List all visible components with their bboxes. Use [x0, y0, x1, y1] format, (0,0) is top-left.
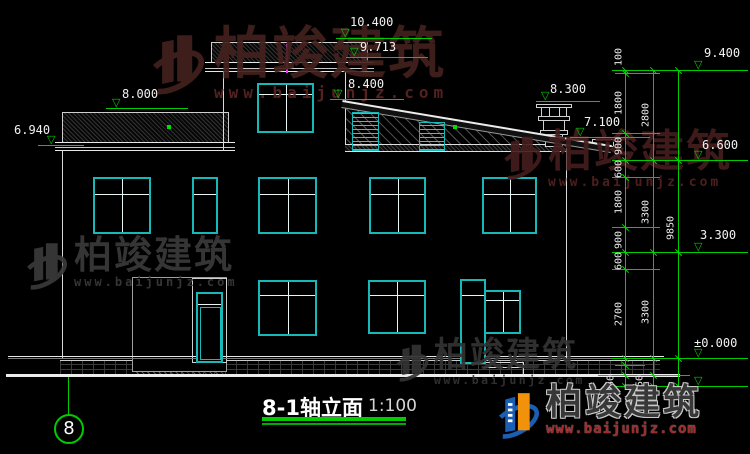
- step-line: [523, 362, 524, 374]
- dim-tick-row: [612, 227, 660, 228]
- dim-label: 100: [614, 48, 625, 66]
- drawing-scale: 1:100: [368, 396, 417, 416]
- window-2f-3: [258, 177, 317, 234]
- step-line: [483, 367, 524, 368]
- elevation-label: 6.600: [702, 138, 738, 152]
- window-tower: [257, 83, 314, 133]
- side-door: [460, 279, 486, 364]
- elevation-label: ±0.000: [694, 336, 737, 350]
- brand-logo-icon: [16, 236, 74, 294]
- dim-chain-line: [678, 70, 679, 386]
- cad-elevation-drawing: 柏竣建筑 www.baijunjz.com 柏竣建筑 www.baijunjz.…: [0, 0, 750, 454]
- chimney-line: [559, 108, 560, 116]
- elevation-label: 3.300: [700, 228, 736, 242]
- tower-slab: [205, 62, 374, 72]
- window-2f-1: [93, 177, 151, 234]
- dim-label: 600: [614, 160, 625, 178]
- dim-label: 1800: [614, 91, 625, 115]
- dim-tick-row: [615, 365, 645, 366]
- roof-louver-2: [419, 122, 445, 151]
- footer-brand-name: 柏竣建筑: [546, 385, 702, 421]
- watermark-brand: 柏竣建筑: [74, 236, 238, 275]
- dim-label: 3300: [641, 200, 652, 224]
- window-1f-2: [368, 280, 426, 334]
- window-2f-2-narrow: [192, 177, 218, 234]
- terrace-line: [8, 358, 664, 359]
- window-2f-4: [369, 177, 426, 234]
- elevation-line: [38, 145, 84, 146]
- dim-chain-line: [653, 70, 654, 386]
- ground-line: [6, 374, 680, 377]
- chimney-line: [549, 108, 550, 116]
- elevation-label: 10.400: [350, 15, 393, 29]
- elevation-label: 9.713: [360, 40, 396, 54]
- window-1f-3: [484, 290, 521, 334]
- tower-wall-left: [223, 71, 224, 151]
- brand-logo-color-icon: [488, 385, 546, 443]
- tower-wall-right: [345, 71, 346, 150]
- elevation-line: [336, 38, 432, 39]
- dim-label: 2800: [641, 103, 652, 127]
- dim-label: 900: [614, 137, 625, 155]
- left-roof-parapet: [62, 112, 229, 143]
- title-underline: [262, 417, 406, 421]
- elevation-label: 9.400: [704, 46, 740, 60]
- elevation-label: 8.000: [122, 87, 158, 101]
- wall-left: [62, 150, 63, 359]
- green-node-dot: [453, 125, 457, 129]
- dim-label: 1800: [614, 190, 625, 214]
- elevation-label: 7.100: [584, 115, 620, 129]
- footer-brand-url: www.baijunjz.com: [546, 421, 702, 437]
- window-2f-5: [482, 177, 537, 234]
- dim-label: 600: [614, 252, 625, 270]
- wall-right: [566, 148, 567, 359]
- dim-tick-row: [615, 73, 660, 74]
- elevation-line: [346, 57, 428, 58]
- title-underline-thin: [262, 423, 406, 425]
- elevation-label: 8.300: [550, 82, 586, 96]
- dim-label-total: 9850: [666, 216, 677, 240]
- dim-label: 3300: [641, 300, 652, 324]
- left-roof-slab: [55, 142, 235, 151]
- terrace-line: [8, 356, 664, 357]
- dim-label: 2700: [614, 302, 625, 326]
- tower-parapet: [211, 42, 368, 63]
- elevation-label: 6.940: [14, 123, 50, 137]
- footer-brand: 柏竣建筑 www.baijunjz.com: [488, 385, 702, 443]
- entry-door-leaf: [200, 307, 221, 360]
- dim-tick-row: [612, 133, 660, 134]
- roof-louver-1: [352, 112, 379, 151]
- axis-leader-line: [68, 377, 69, 415]
- magenta-marker-line: [286, 44, 288, 73]
- green-node-dot: [167, 125, 171, 129]
- window-1f-1: [258, 280, 317, 336]
- axis-bubble: 8: [54, 414, 84, 444]
- elevation-label: 8.400: [348, 77, 384, 91]
- dim-label: 900: [614, 231, 625, 249]
